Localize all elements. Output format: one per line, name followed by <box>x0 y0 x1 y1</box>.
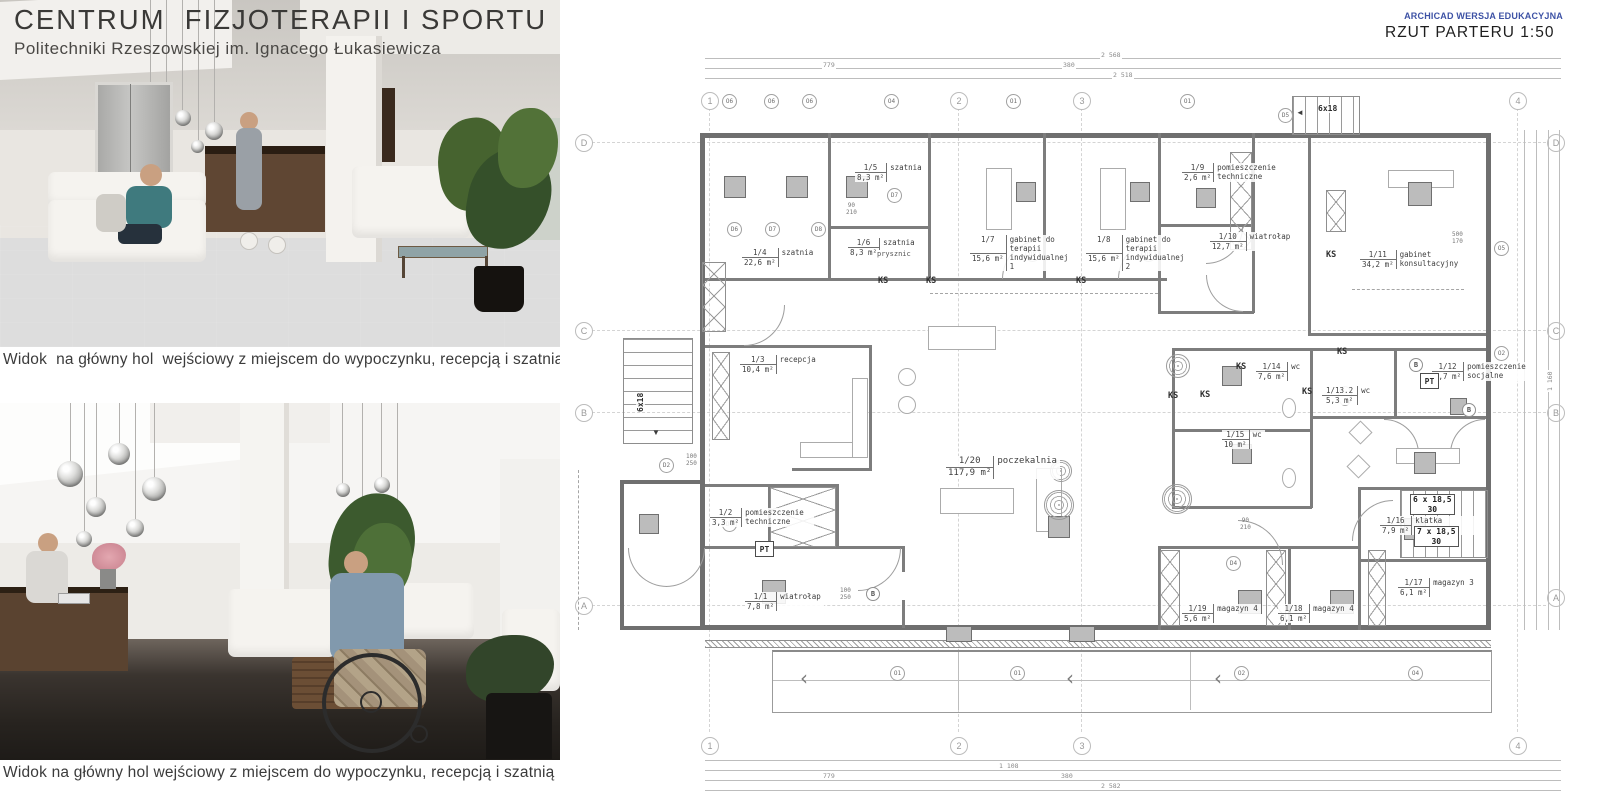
grid-bubble-row: A <box>1547 589 1565 607</box>
equipment-block <box>1196 188 1216 208</box>
lamp-cord <box>381 403 382 479</box>
bar-stool <box>268 236 286 254</box>
wavy-screen-line <box>1352 289 1464 290</box>
wheelchair-hub <box>360 691 382 713</box>
window-tag: O2 <box>1494 346 1509 361</box>
grid-bubble-row: D <box>1547 134 1565 152</box>
door-dim: 90210 <box>1240 518 1251 532</box>
board-subtitle: Politechniki Rzeszowskiej im. Ignacego Ł… <box>14 39 547 59</box>
room-number: 1/1 <box>745 592 776 602</box>
pt-marker: PT <box>1420 373 1439 389</box>
grid-bubble-row: B <box>1547 404 1565 422</box>
room-name: gabinet konsultacyjny <box>1396 250 1469 269</box>
ks-marker: KS <box>926 276 936 286</box>
room-area: 7,6 m² <box>1256 372 1287 381</box>
window-tag: O6 <box>802 94 817 109</box>
room-number: 1/9 <box>1182 163 1213 173</box>
partition <box>1310 416 1486 419</box>
door-dim-height: 250 <box>840 595 851 602</box>
grid-line-4 <box>1517 108 1518 732</box>
room-area: 6,1 m² <box>1278 614 1309 623</box>
room-number: 1/17 <box>1398 578 1429 588</box>
grid-bubble-row: B <box>575 404 593 422</box>
room-area: 22,6 m² <box>742 258 778 267</box>
person-head <box>140 164 162 186</box>
room-name: pomieszczenie socjalne <box>1463 362 1536 381</box>
partition <box>869 345 872 471</box>
ks-marker: KS <box>1337 347 1347 357</box>
shaft-box <box>1160 550 1180 626</box>
room-name: magazyn 3 <box>1429 578 1477 597</box>
photo-caption-bottom: Widok na główny hol wejściowy z miejscem… <box>0 760 563 802</box>
dim-value: 380 <box>1062 61 1076 69</box>
window-tag: O4 <box>884 94 899 109</box>
room-name: magazyn 4 <box>1213 604 1261 623</box>
partition <box>1288 546 1360 549</box>
b-marker: B <box>1462 403 1476 417</box>
grid-bubble-row: C <box>575 322 593 340</box>
dim-line <box>1536 130 1537 630</box>
stair-steps: 6 x 18,5 <box>1413 495 1452 504</box>
reception-counter <box>205 154 325 232</box>
wheelchair-caster <box>410 725 428 743</box>
partition <box>705 345 871 348</box>
partition <box>1308 138 1311 335</box>
potted-plant <box>1166 354 1190 378</box>
room-area: 5,3 m² <box>1322 396 1357 405</box>
ks-marker: KS <box>1200 390 1210 400</box>
dim-value: 779 <box>822 61 836 69</box>
partition <box>828 133 831 281</box>
partition <box>1308 333 1486 336</box>
room-label-1-1: 1/17,8 m²wiatrołap <box>745 592 824 611</box>
door-tag: D8 <box>811 222 826 237</box>
stair-height: 30 <box>1413 505 1452 515</box>
ks-marker: KS <box>878 276 888 286</box>
room-name: pomieszczenie techniczne <box>1213 163 1286 182</box>
slope-chevron: ‹ <box>1214 668 1222 688</box>
partition <box>1394 348 1397 418</box>
room-label-1-3: 1/310,4 m²recepcja <box>740 355 819 374</box>
room-name: szatnia <box>778 248 817 267</box>
partition <box>1310 348 1313 508</box>
person-standing <box>236 128 262 210</box>
room-name: gabinet do terapii indywidualnej 2 <box>1122 235 1195 271</box>
globe-lamp <box>336 483 350 497</box>
b-marker: B <box>866 587 880 601</box>
window-tag: O1 <box>890 666 905 681</box>
insulation-strip <box>705 640 1491 648</box>
partition <box>1158 133 1161 313</box>
globe-lamp <box>126 519 144 537</box>
grid-bubble-row: D <box>575 134 593 152</box>
b-marker: B <box>1409 358 1423 372</box>
stair-run-label: 6 x 18,5 30 <box>1410 494 1455 515</box>
lamp-cord <box>135 403 136 521</box>
archicad-watermark: ARCHICAD WERSJA EDUKACYJNA <box>1404 11 1563 21</box>
room-area: 10 m² <box>1222 440 1249 449</box>
window-dim: 500170 <box>1452 232 1463 246</box>
dim-line <box>705 780 1561 781</box>
door-tag: D7 <box>765 222 780 237</box>
shaft-box <box>1326 190 1346 232</box>
partition <box>902 546 905 572</box>
door-dim: 100250 <box>840 588 851 602</box>
ks-marker: KS <box>1076 276 1086 286</box>
room-area: 12,7 m² <box>1210 242 1246 251</box>
room-area: 117,9 m² <box>946 468 993 479</box>
slope-chevron: ‹ <box>1066 668 1074 688</box>
potted-plant <box>1162 484 1192 514</box>
partition <box>928 133 931 281</box>
stair-arrow: ▼ <box>652 428 660 437</box>
stair-flight-label: 6x18 <box>636 393 645 412</box>
partition <box>836 484 839 548</box>
wall <box>620 480 704 484</box>
dim-line <box>705 760 1561 761</box>
room-area: 10,4 m² <box>740 365 776 374</box>
room-area: 5,6 m² <box>1182 614 1213 623</box>
equipment-block <box>1016 182 1036 202</box>
grid-bubble-col: 4 <box>1509 737 1527 755</box>
board-title: CENTRUM FIZJOTERAPII I SPORTU <box>14 4 547 36</box>
room-label-1-18: 1/186,1 m²magazyn 4 <box>1278 604 1357 623</box>
room-name: gabinet do terapii indywidualnej 1 <box>1006 235 1079 271</box>
shaft-box <box>712 352 730 440</box>
dim-line <box>705 58 1561 59</box>
title-block: CENTRUM FIZJOTERAPII I SPORTU Politechni… <box>14 4 547 59</box>
door-dim-height: 250 <box>686 461 697 468</box>
grid-line-D <box>592 142 1546 143</box>
room-label-1-11: 1/1134,2 m²gabinet konsultacyjny <box>1360 250 1469 269</box>
pendant-lamp <box>205 122 223 140</box>
grid-bubble-col: 2 <box>950 92 968 110</box>
room-label-1-4: 1/422,6 m²szatnia <box>742 248 816 267</box>
door-dim: 100250 <box>686 454 697 468</box>
grid-bubble-col: 3 <box>1073 737 1091 755</box>
room-number: 1/6 <box>848 238 879 248</box>
window-tag: O6 <box>722 94 737 109</box>
laptop <box>58 593 90 604</box>
ks-marker: KS <box>1168 391 1178 401</box>
wall <box>700 133 1491 138</box>
stair-run-label: 7 x 18,5 30 <box>1414 526 1459 547</box>
room-label-1-20: 1/20117,9 m²poczekalnia <box>946 456 1060 479</box>
room-number: 1/18 <box>1278 604 1309 614</box>
lamp-cord <box>342 403 343 485</box>
room-area: 8,3 m² <box>855 173 886 182</box>
corridor-dashed-line <box>930 293 1158 294</box>
partition <box>902 600 905 628</box>
room-name: wc <box>1287 362 1303 381</box>
stair-height: 30 <box>1417 537 1456 547</box>
equipment-block <box>639 514 659 534</box>
door-tag: D4 <box>1226 556 1241 571</box>
room-label-1-12: 1/125,7 m²pomieszczenie socjalne <box>1432 362 1536 381</box>
grid-line-1 <box>709 108 710 732</box>
column-block <box>946 626 972 642</box>
room-number: 1/10 <box>1210 232 1246 242</box>
partition <box>792 468 870 471</box>
room-label-1-7: 1/715,6 m²gabinet do terapii indywidualn… <box>970 235 1079 271</box>
equipment-block <box>1130 182 1150 202</box>
window-dim-height: 170 <box>1452 239 1463 246</box>
globe-lamp <box>142 477 166 501</box>
room-name: wc <box>1357 386 1373 405</box>
dim-line <box>705 790 1561 791</box>
door-tag: D2 <box>659 458 674 473</box>
window-tag: O1 <box>1006 94 1021 109</box>
room-number: 1/15 <box>1222 430 1249 440</box>
lamp-cord <box>397 403 398 511</box>
visitor-chair <box>898 368 916 386</box>
room-number: 1/20 <box>946 456 993 468</box>
window-tag: O1 <box>1180 94 1195 109</box>
equipment-block <box>1414 452 1436 474</box>
person-seated <box>96 194 126 232</box>
room-number: 1/2 <box>710 508 741 518</box>
room-label-1-19: 1/195,6 m²magazyn 4 <box>1182 604 1261 623</box>
door-tag: D6 <box>727 222 742 237</box>
toilet <box>1282 398 1296 418</box>
room-name: wiatrołap <box>776 592 824 611</box>
room-name: szatnia <box>886 163 925 182</box>
person-head <box>344 551 368 575</box>
grid-bubble-col: 4 <box>1509 92 1527 110</box>
slope-chevron: ‹ <box>800 668 808 688</box>
canopy-outline <box>772 650 1492 713</box>
door-dim: 90210 <box>846 203 857 217</box>
therapy-bed <box>1100 168 1126 230</box>
reception-desk <box>0 593 128 671</box>
room-label-1-5: 1/58,3 m²szatnia <box>855 163 925 182</box>
lamp-cord <box>84 403 85 533</box>
lamp-cord <box>154 403 155 481</box>
lamp-cord <box>119 403 120 445</box>
room-number: 1/19 <box>1182 604 1213 614</box>
flower-vase <box>100 569 116 589</box>
toilet <box>1282 468 1296 488</box>
door-tag: D5 <box>1278 108 1293 123</box>
site-dashed-line <box>578 470 579 630</box>
grid-bubble-col: 2 <box>950 737 968 755</box>
stair-steps: 7 x 18,5 <box>1417 527 1456 536</box>
grid-bubble-row: C <box>1547 322 1565 340</box>
window-tag: O1 <box>1010 666 1025 681</box>
room-area: 15,6 m² <box>970 254 1006 272</box>
door-dim-height: 210 <box>1240 525 1251 532</box>
room-area: 15,6 m² <box>1086 254 1122 272</box>
room-area: 8,3 m² <box>848 248 879 257</box>
room-label-1-14: 1/147,6 m²wc <box>1256 362 1303 381</box>
person-torso <box>330 573 404 661</box>
shaft-box <box>1368 550 1386 626</box>
globe-lamp <box>57 461 83 487</box>
room-number: 1/16 <box>1380 516 1411 526</box>
grid-line-A <box>592 605 1546 606</box>
sofa-middle <box>228 589 336 657</box>
locker-block <box>786 176 808 198</box>
window-tag: O4 <box>1408 666 1423 681</box>
grid-line-B <box>592 412 1546 413</box>
room-label-1-9: 1/92,6 m²pomieszczenie techniczne <box>1182 163 1286 182</box>
room-label-1-2: 1/23,3 m²pomieszczenie techniczne <box>710 508 814 527</box>
room-name: pomieszczenie techniczne <box>741 508 814 527</box>
wall <box>620 480 624 630</box>
room-area: 7,9 m² <box>1380 526 1411 535</box>
dim-value: 2 568 <box>1100 51 1122 59</box>
presentation-board: CENTRUM FIZJOTERAPII I SPORTU Politechni… <box>0 0 1600 798</box>
room-area: 7,8 m² <box>745 602 776 611</box>
lamp-cord <box>362 403 363 503</box>
plant-pot <box>474 266 524 312</box>
partition <box>1172 348 1486 351</box>
prysznic-label: prysznic <box>876 250 912 258</box>
room-name: wc <box>1249 430 1265 449</box>
therapy-bed <box>986 168 1012 230</box>
room-label-1-17: 1/176,1 m²magazyn 3 <box>1398 578 1477 597</box>
globe-lamp <box>86 497 106 517</box>
shaft-box <box>702 262 726 332</box>
room-number: 1/12 <box>1432 362 1463 372</box>
door-tag: D7 <box>887 188 902 203</box>
render-photo-bottom <box>0 403 560 760</box>
plant-pot <box>486 693 552 759</box>
partition <box>828 226 928 229</box>
dim-line <box>1559 130 1560 630</box>
dim-value: 1 108 <box>998 762 1020 770</box>
room-number: 1/7 <box>970 235 1006 254</box>
room-name: recepcja <box>776 355 819 374</box>
stair-arrow: ◄ <box>1296 108 1304 117</box>
pt-marker: PT <box>755 541 774 557</box>
globe-lamp <box>76 531 92 547</box>
dim-value: 2 518 <box>1112 71 1134 79</box>
room-label-1-13: 1/13.25,3 m²wc <box>1322 386 1373 405</box>
stair-flight-label: 6x18 <box>1318 104 1337 113</box>
globe-lamp <box>108 443 130 465</box>
room-name: magazyn 4 <box>1309 604 1357 623</box>
window-tag: O2 <box>1234 666 1249 681</box>
wall <box>620 626 704 630</box>
room-area: 34,2 m² <box>1360 260 1396 269</box>
pendant-lamp <box>175 110 191 126</box>
grid-line-C <box>592 330 1546 331</box>
room-name: poczekalnia <box>993 456 1060 479</box>
room-area: 3,3 m² <box>710 518 741 527</box>
room-number: 1/13.2 <box>1322 386 1357 396</box>
lamp-cord <box>70 403 71 465</box>
waiting-sofa <box>928 326 996 350</box>
room-number: 1/5 <box>855 163 886 173</box>
dim-line <box>705 770 1561 771</box>
render-photo-top: CENTRUM FIZJOTERAPII I SPORTU Politechni… <box>0 0 560 347</box>
ks-marker: KS <box>1236 362 1246 372</box>
room-area: 2,6 m² <box>1182 173 1213 182</box>
room-number: 1/14 <box>1256 362 1287 372</box>
room-area: 6,1 m² <box>1398 588 1429 597</box>
visitor-chair <box>898 396 916 414</box>
room-number: 1/11 <box>1360 250 1396 260</box>
partition <box>1252 133 1255 313</box>
grid-bubble-col: 1 <box>701 737 719 755</box>
grid-bubble-col: 1 <box>701 92 719 110</box>
room-number: 1/3 <box>740 355 776 365</box>
partition <box>1172 506 1312 509</box>
dim-value: 2 582 <box>1100 782 1122 790</box>
door-dim-height: 210 <box>846 210 857 217</box>
room-number: 1/8 <box>1086 235 1122 254</box>
room-label-1-8: 1/815,6 m²gabinet do terapii indywidualn… <box>1086 235 1195 271</box>
person-head <box>38 533 58 553</box>
grid-bubble-col: 3 <box>1073 92 1091 110</box>
equipment-block <box>1408 182 1432 206</box>
plan-title: RZUT PARTERU 1:50 <box>1385 24 1554 42</box>
photo-caption-top: Widok na główny hol wejściowy z miejscem… <box>0 347 563 379</box>
waiting-sofa <box>940 488 1014 514</box>
person-torso <box>126 186 172 228</box>
column-block <box>1069 626 1095 642</box>
potted-plant <box>1044 490 1074 520</box>
ks-marker: KS <box>1302 387 1312 397</box>
room-label-1-10: 1/1012,7 m²wiatrołap <box>1210 232 1293 251</box>
window-tag: O5 <box>1494 241 1509 256</box>
room-name: wiatrołap <box>1246 232 1294 251</box>
pendant-lamp <box>191 140 204 153</box>
reception-desk-plan <box>852 378 868 458</box>
dim-value: 380 <box>1060 772 1074 780</box>
bar-stool <box>240 232 258 250</box>
ks-marker: KS <box>1326 250 1336 260</box>
room-number: 1/4 <box>742 248 778 258</box>
locker-block <box>724 176 746 198</box>
room-label-1-15: 1/1510 m²wc <box>1222 430 1265 449</box>
dim-value: 1 160 <box>1546 370 1554 392</box>
globe-lamp <box>374 477 390 493</box>
window-tag: O6 <box>764 94 779 109</box>
dim-value: 779 <box>822 772 836 780</box>
lamp-cord <box>96 403 97 499</box>
